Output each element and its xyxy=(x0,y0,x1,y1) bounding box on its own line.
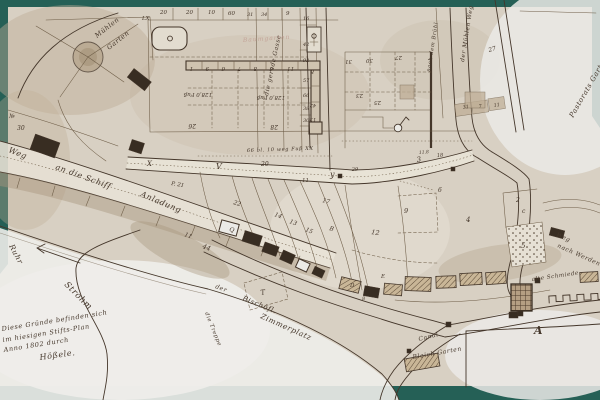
map-label: 7 xyxy=(237,65,241,71)
map-label: 20 xyxy=(185,10,193,16)
map-label: 57 xyxy=(303,78,310,84)
fountain-basin xyxy=(152,27,187,50)
map-label: 27 xyxy=(395,54,403,60)
map-label: E xyxy=(380,274,386,280)
map-label: V xyxy=(216,162,223,171)
map-label: № xyxy=(8,113,15,120)
map-label: 8 xyxy=(362,296,365,302)
map-label: 38 xyxy=(303,106,309,112)
map-label: 8 xyxy=(310,68,314,74)
map-label: A xyxy=(533,324,544,337)
map-label: 9 xyxy=(404,207,408,215)
map-label: 8 xyxy=(253,65,257,71)
map-label: 128,0 Fuß xyxy=(256,94,285,100)
building xyxy=(460,272,483,285)
map-label: 30 xyxy=(366,57,373,63)
map-label: X xyxy=(146,160,153,168)
map-label: 31 xyxy=(462,104,469,111)
building xyxy=(384,283,403,296)
map-label: 66 xyxy=(303,93,310,99)
map-label: 9 xyxy=(205,65,209,71)
map-label: 25 xyxy=(374,99,382,105)
map-label: 30 xyxy=(17,125,25,132)
map-label: 2 xyxy=(515,197,520,204)
map-label: 60 xyxy=(228,11,235,17)
map-label: 9 xyxy=(286,11,290,17)
building xyxy=(405,277,431,292)
map-label: 31 xyxy=(345,58,352,64)
map-label: 92 xyxy=(303,58,309,64)
building xyxy=(580,272,598,283)
map-label: 6 xyxy=(269,65,273,71)
map-label: 4 xyxy=(465,216,470,224)
map-label: c xyxy=(522,208,526,215)
building xyxy=(486,271,507,284)
map-label: 11 xyxy=(287,65,294,71)
map-label: 11 xyxy=(302,178,309,184)
map-label: 34 xyxy=(261,12,267,18)
map-label: D xyxy=(349,283,355,289)
map-label: 6 xyxy=(438,187,442,194)
building xyxy=(436,276,456,289)
map-label: 6 xyxy=(221,65,225,71)
map-label: 13 xyxy=(310,116,316,122)
map-label: 20 xyxy=(260,161,269,168)
gate-monument xyxy=(307,27,321,52)
map-label: 28 xyxy=(270,123,279,130)
map-label: LX xyxy=(141,16,151,22)
map-photo: Diese Gründe befinden sich im hiesigen S… xyxy=(0,0,600,400)
map-label: 26 xyxy=(188,122,197,129)
map-label: 10 xyxy=(208,10,215,16)
map-label: 16 xyxy=(303,16,310,22)
map-label: 5 xyxy=(521,242,526,250)
map-label: 42 xyxy=(310,102,317,108)
historical-map-svg: Diese Gründe befinden sich im hiesigen S… xyxy=(0,0,600,400)
map-label: 11 xyxy=(493,102,500,109)
map-label: 30 xyxy=(303,118,310,124)
map-label: 29 xyxy=(351,167,359,173)
map-label: 31 xyxy=(247,12,253,18)
map-label: 12 xyxy=(371,228,380,237)
map-label: 1 xyxy=(190,65,194,71)
map-label: 23 xyxy=(356,92,364,98)
map-label: y xyxy=(329,170,335,179)
map-label: 128,0 Fuß xyxy=(183,91,212,97)
map-label: 18 xyxy=(437,152,444,159)
map-label: 20 xyxy=(159,10,167,16)
map-label: 42 xyxy=(302,42,309,48)
